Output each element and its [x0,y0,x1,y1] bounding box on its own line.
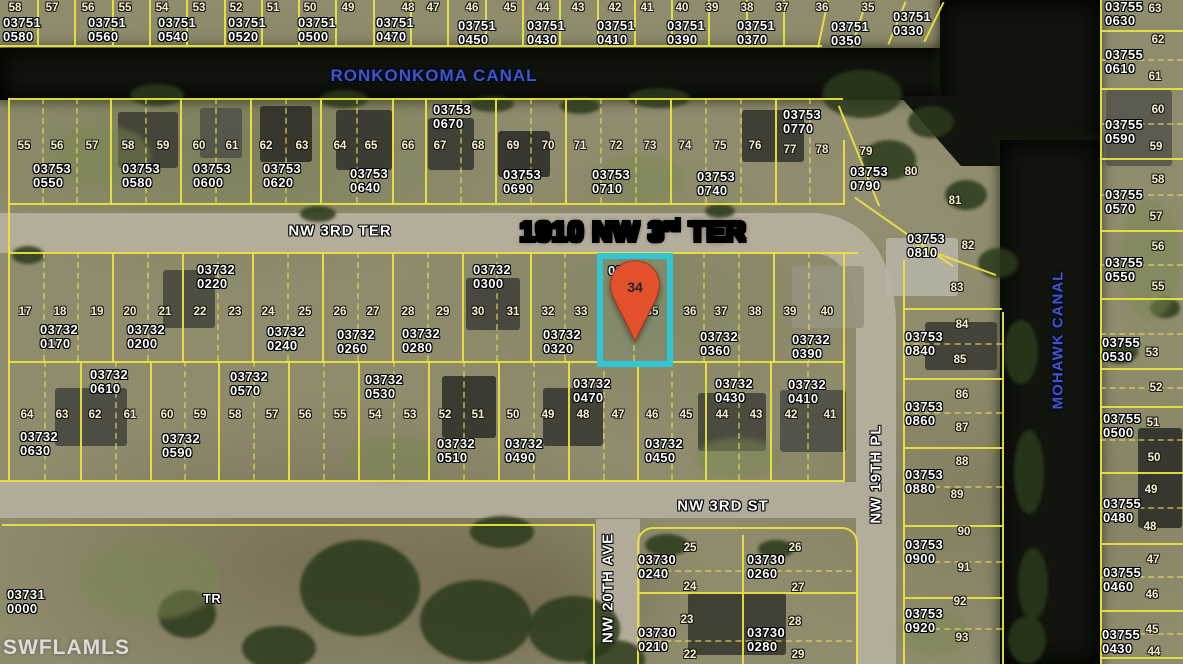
parcel-id-label: 037550500 [1103,412,1141,441]
parcel-id-line2: 0610 [1105,62,1143,76]
parcel-id-line2: 0170 [40,337,78,351]
parcel-id-line2: 0920 [905,621,943,635]
title-part2: TER [681,216,747,247]
parcel-id-label: 037530810 [907,232,945,261]
lot-number: 48 [577,409,590,421]
lot-number: 36 [816,2,829,14]
lot-number: 39 [784,306,797,318]
lot-number: 51 [1147,417,1160,429]
parcel-id-line2: 0740 [697,184,735,198]
lot-number: 50 [304,2,317,14]
parcel-id-line1: 03730 [747,626,785,640]
parcel-id-label: 037320300 [473,263,511,292]
parcel-id-line1: 03751 [228,16,266,30]
parcel-id-label: 037320430 [715,377,753,406]
lot-number: 50 [507,409,520,421]
lot-number: 90 [958,526,971,538]
parcel-id-line1: 03732 [788,378,826,392]
parcel-id-line2: 0450 [458,33,496,47]
lot-number: 61 [124,409,137,421]
parcel-id-line1: 03755 [1103,566,1141,580]
parcel-id-label: 037300260 [747,553,785,582]
lot-number: 39 [706,2,719,14]
parcel-id-line2: 0260 [337,342,375,356]
parcel-id-line1: 03730 [638,553,676,567]
lot-number: 63 [296,140,309,152]
street-name-label: NW 20TH AVE [600,533,617,643]
parcel-id-line2: 0840 [905,344,943,358]
parcel-id-label: 037510430 [527,19,565,48]
lot-number: 55 [119,2,132,14]
parcel-id-line1: 03732 [473,263,511,277]
parcel-id-line1: 03732 [230,370,268,384]
lot-number: 55 [1152,281,1165,293]
lot-number: 52 [439,409,452,421]
parcel-id-line2: 0630 [20,444,58,458]
lot-number: 51 [267,2,280,14]
street-name-label: NW 3RD TER [288,223,391,240]
parcel-id-line1: 03732 [505,437,543,451]
parcel-id-line1: 03755 [1105,0,1143,14]
parcel-id-line2: 0620 [263,176,301,190]
parcel-id-label: 037300280 [747,626,785,655]
parcel-id-label: 037510370 [737,19,775,48]
lot-number: 42 [609,2,622,14]
location-pin-icon[interactable] [607,259,663,345]
parcel-id-line1: 03732 [267,325,305,339]
lot-number: 46 [646,409,659,421]
parcel-id-line1: 03732 [90,368,128,382]
parcel-id-line2: 0240 [267,339,305,353]
parcel-id-line1: 03755 [1105,48,1143,62]
parcel-id-line1: 03753 [350,167,388,181]
parcel-id-line1: 03751 [376,16,414,30]
lot-number: 31 [507,306,520,318]
parcel-id-line2: 0600 [193,176,231,190]
parcel-id-label: 037320490 [505,437,543,466]
parcel-id-line1: 03732 [792,333,830,347]
lot-number: 61 [226,140,239,152]
parcel-id-line1: 03753 [850,165,888,179]
aerial-parcel-map: 0375105800375105600375105400375105200375… [0,0,1183,664]
parcel-id-line2: 0690 [503,182,541,196]
lot-number: 38 [749,306,762,318]
lot-number: 56 [1152,241,1165,253]
parcel-id-line2: 0360 [700,344,738,358]
parcel-id-line1: 03751 [831,20,869,34]
parcel-id-line2: 0220 [197,277,235,291]
street-name-label: NW 3RD ST [677,498,769,515]
parcel-id-line2: 0770 [783,122,821,136]
lot-number: 68 [472,140,485,152]
parcel-id-line2: 0370 [737,33,775,47]
lot-number: 46 [1146,589,1159,601]
parcel-id-line1: 03755 [1103,497,1141,511]
parcel-id-line2: 0520 [228,30,266,44]
parcel-id-line2: 0280 [402,341,440,355]
parcel-id-line2: 0390 [667,33,705,47]
lot-number: 40 [821,306,834,318]
parcel-id-label: 037510580 [3,16,41,45]
lot-number: 57 [1150,211,1163,223]
parcel-id-label: 037530770 [783,108,821,137]
lot-number: 38 [741,2,754,14]
misc-map-label: TR [203,592,221,606]
lot-number: 28 [402,306,415,318]
parcel-id-label: 037320280 [402,327,440,356]
lot-number: 40 [676,2,689,14]
parcel-id-line1: 03753 [905,607,943,621]
lot-number: 81 [949,195,962,207]
lot-number: 48 [402,2,415,14]
lot-number: 63 [1149,3,1162,15]
lot-number: 27 [792,582,805,594]
lot-number: 47 [427,2,440,14]
lot-number: 67 [434,140,447,152]
lot-number: 49 [542,409,555,421]
lot-number: 23 [229,306,242,318]
lot-number: 59 [157,140,170,152]
lot-number: 35 [862,2,875,14]
parcel-id-line2: 0490 [505,451,543,465]
parcel-id-line2: 0900 [905,552,943,566]
parcel-id-label: 037320630 [20,430,58,459]
parcel-id-label: 037510540 [158,16,196,45]
parcel-id-line2: 0410 [788,392,826,406]
parcel-id-label: 037320260 [337,328,375,357]
lot-number: 49 [1145,484,1158,496]
parcel-id-line1: 03732 [337,328,375,342]
lot-number: 23 [681,614,694,626]
title-part1: 1910 NW 3 [520,216,665,247]
parcel-id-label: 037550430 [1102,628,1140,657]
misc-label-line1: 03731 [7,588,45,602]
lot-number: 25 [299,306,312,318]
parcel-id-line1: 03732 [645,437,683,451]
lot-number: 27 [367,306,380,318]
parcel-id-label: 037320240 [267,325,305,354]
parcel-id-line1: 03732 [402,327,440,341]
lot-number: 60 [161,409,174,421]
lot-number: 52 [230,2,243,14]
parcel-id-line2: 0810 [907,246,945,260]
lot-number: 19 [91,306,104,318]
parcel-id-line1: 03751 [667,19,705,33]
parcel-id-label: 037530640 [350,167,388,196]
lot-number: 50 [1148,452,1161,464]
street-name-label: NW 19TH PL [868,424,885,523]
parcel-id-line1: 03751 [458,19,496,33]
lot-number: 30 [472,306,485,318]
lot-number: 26 [334,306,347,318]
lot-number: 53 [1146,347,1159,359]
lot-number: 20 [124,306,137,318]
pin-lot-number: 34 [627,279,643,295]
lot-number: 69 [507,140,520,152]
parcel-id-line2: 0260 [747,567,785,581]
parcel-id-line2: 0630 [1105,14,1143,28]
parcel-id-line1: 03751 [737,19,775,33]
lot-number: 56 [51,140,64,152]
parcel-id-line1: 03751 [597,19,635,33]
parcel-id-label: 037530620 [263,162,301,191]
labels-layer: 0375105800375105600375105400375105200375… [0,0,1183,664]
parcel-id-label: 037530550 [33,162,71,191]
parcel-id-line1: 03751 [88,16,126,30]
parcel-id-line1: 03732 [365,373,403,387]
lot-number: 36 [684,306,697,318]
lot-number: 83 [951,282,964,294]
parcel-id-line1: 03732 [20,430,58,444]
lot-number: 58 [229,409,242,421]
lot-number: 60 [1152,104,1165,116]
parcel-id-line1: 03753 [592,168,630,182]
parcel-id-line2: 0210 [638,640,676,654]
parcel-id-label: 037550550 [1105,256,1143,285]
lot-number: 91 [958,562,971,574]
lot-number: 75 [714,140,727,152]
lot-number: 62 [89,409,102,421]
parcel-id-line1: 03753 [33,162,71,176]
parcel-id-label: 037530900 [905,538,943,567]
parcel-id-label: 037530880 [905,468,943,497]
parcel-id-label: 037510410 [597,19,635,48]
lot-number: 37 [776,2,789,14]
parcel-id-label: 037510520 [228,16,266,45]
lot-number: 29 [792,649,805,661]
parcel-id-label: 037530860 [905,400,943,429]
parcel-id-label: 037530740 [697,170,735,199]
parcel-id-line2: 0550 [1105,270,1143,284]
parcel-id-line2: 0450 [645,451,683,465]
lot-number: 64 [334,140,347,152]
parcel-id-line2: 0320 [543,342,581,356]
parcel-id-line1: 03753 [263,162,301,176]
parcel-id-line1: 03732 [197,263,235,277]
lot-number: 26 [789,542,802,554]
parcel-id-line2: 0410 [597,33,635,47]
parcel-id-line1: 03753 [905,400,943,414]
lot-number: 25 [684,542,697,554]
parcel-id-line2: 0470 [573,391,611,405]
parcel-id-label: 037530840 [905,330,943,359]
parcel-id-line1: 03732 [40,323,78,337]
parcel-id-label: 037530710 [592,168,630,197]
parcel-id-line2: 0670 [433,117,471,131]
parcel-id-line1: 03755 [1102,628,1140,642]
lot-number: 24 [684,581,697,593]
lot-number: 24 [262,306,275,318]
parcel-id-label: 037510560 [88,16,126,45]
lot-number: 63 [56,409,69,421]
lot-number: 41 [824,409,837,421]
parcel-id-line1: 03755 [1102,336,1140,350]
parcel-id-line1: 03732 [700,330,738,344]
parcel-id-line1: 03732 [573,377,611,391]
parcel-id-label: 037320220 [197,263,235,292]
parcel-id-line2: 0880 [905,482,943,496]
parcel-id-label: 037530600 [193,162,231,191]
lot-number: 54 [369,409,382,421]
parcel-id-label: 037320510 [437,437,475,466]
lot-number: 93 [956,632,969,644]
lot-number: 88 [956,456,969,468]
parcel-id-line2: 0540 [158,30,196,44]
lot-number: 84 [956,319,969,331]
lot-number: 59 [1150,141,1163,153]
lot-number: 33 [575,306,588,318]
parcel-id-line2: 0470 [376,30,414,44]
parcel-id-line1: 03753 [193,162,231,176]
parcel-id-line1: 03753 [783,108,821,122]
lot-number: 22 [684,649,697,661]
parcel-id-line1: 03730 [747,553,785,567]
canal-name-label: MOHAWK CANAL [1050,271,1067,410]
parcel-id-label: 037510350 [831,20,869,49]
parcel-id-line2: 0430 [715,391,753,405]
parcel-id-line2: 0570 [1105,202,1143,216]
parcel-id-line1: 03755 [1105,118,1143,132]
parcel-id-line2: 0530 [1102,350,1140,364]
parcel-id-line1: 03751 [527,19,565,33]
parcel-id-label: 037320320 [543,328,581,357]
lot-number: 87 [956,422,969,434]
lot-number: 56 [82,2,95,14]
parcel-id-line2: 0610 [90,382,128,396]
lot-number: 42 [785,409,798,421]
parcel-id-line1: 03753 [503,168,541,182]
lot-number: 78 [816,144,829,156]
lot-number: 44 [716,409,729,421]
lot-number: 47 [612,409,625,421]
lot-number: 77 [784,144,797,156]
parcel-id-line1: 03753 [433,103,471,117]
lot-number: 66 [402,140,415,152]
parcel-id-line2: 0590 [1105,132,1143,146]
parcel-id-line1: 03751 [3,16,41,30]
lot-number: 45 [680,409,693,421]
parcel-id-label: 037320360 [700,330,738,359]
parcel-id-label: 037550480 [1103,497,1141,526]
lot-number: 60 [193,140,206,152]
parcel-id-line1: 03753 [905,330,943,344]
parcel-id-line2: 0560 [88,30,126,44]
lot-number: 43 [572,2,585,14]
lot-number: 53 [404,409,417,421]
lot-number: 44 [1148,646,1161,658]
parcel-id-line2: 0300 [473,277,511,291]
parcel-id-line2: 0580 [122,176,160,190]
parcel-id-label: 037510500 [298,16,336,45]
parcel-id-label: 037320570 [230,370,268,399]
lot-number: 64 [21,409,34,421]
misc-label-line1: TR [203,592,221,606]
lot-number: 52 [1150,382,1163,394]
parcel-id-line2: 0500 [1103,426,1141,440]
lot-number: 76 [749,140,762,152]
lot-number: 57 [86,140,99,152]
parcel-id-line1: 03755 [1103,412,1141,426]
parcel-id-line2: 0590 [162,446,200,460]
lot-number: 53 [193,2,206,14]
parcel-id-label: 037530580 [122,162,160,191]
lot-number: 48 [1144,521,1157,533]
parcel-id-label: 037320390 [792,333,830,362]
parcel-id-label: 037320200 [127,323,165,352]
parcel-id-line1: 03732 [543,328,581,342]
parcel-id-label: 037300240 [638,553,676,582]
lot-number: 82 [962,240,975,252]
lot-number: 72 [610,140,623,152]
parcel-id-line2: 0280 [747,640,785,654]
parcel-id-label: 037320530 [365,373,403,402]
parcel-id-line2: 0580 [3,30,41,44]
parcel-id-line2: 0530 [365,387,403,401]
parcel-id-line2: 0570 [230,384,268,398]
canal-name-label: RONKONKOMA CANAL [330,66,537,86]
lot-number: 57 [266,409,279,421]
parcel-id-line2: 0790 [850,179,888,193]
lot-number: 56 [299,409,312,421]
parcel-id-line2: 0390 [792,347,830,361]
lot-number: 58 [122,140,135,152]
parcel-id-label: 037530920 [905,607,943,636]
parcel-id-line2: 0200 [127,337,165,351]
lot-number: 21 [159,306,172,318]
mls-watermark: SWFLAMLS [3,636,130,660]
lot-number: 79 [860,146,873,158]
misc-label-line2: 0000 [7,602,45,616]
parcel-id-line1: 03751 [158,16,196,30]
parcel-id-line1: 03732 [437,437,475,451]
lot-number: 65 [365,140,378,152]
parcel-id-label: 037550630 [1105,0,1143,29]
parcel-id-line2: 0330 [893,24,931,38]
parcel-id-line1: 03732 [715,377,753,391]
parcel-id-line1: 03751 [298,16,336,30]
parcel-id-line2: 0640 [350,181,388,195]
lot-number: 55 [18,140,31,152]
parcel-id-label: 037550460 [1103,566,1141,595]
parcel-id-label: 037320450 [645,437,683,466]
parcel-id-line1: 03753 [905,468,943,482]
parcel-id-label: 037530690 [503,168,541,197]
parcel-id-label: 037550610 [1105,48,1143,77]
parcel-id-label: 037510450 [458,19,496,48]
parcel-id-line2: 0430 [1102,642,1140,656]
lot-number: 73 [644,140,657,152]
lot-number: 58 [1152,174,1165,186]
parcel-id-label: 037320590 [162,432,200,461]
parcel-id-line2: 0430 [527,33,565,47]
lot-number: 43 [750,409,763,421]
lot-number: 22 [194,306,207,318]
parcel-id-line1: 03753 [122,162,160,176]
parcel-id-label: 037550530 [1102,336,1140,365]
lot-number: 45 [1146,624,1159,636]
parcel-id-label: 037550570 [1105,188,1143,217]
parcel-id-line2: 0480 [1103,511,1141,525]
lot-number: 46 [466,2,479,14]
parcel-id-line1: 03732 [162,432,200,446]
parcel-id-label: 037510390 [667,19,705,48]
lot-number: 41 [641,2,654,14]
lot-number: 86 [956,389,969,401]
parcel-id-label: 037320470 [573,377,611,406]
parcel-id-line2: 0860 [905,414,943,428]
parcel-id-label: 037510330 [893,10,931,39]
parcel-id-label: 037300210 [638,626,676,655]
